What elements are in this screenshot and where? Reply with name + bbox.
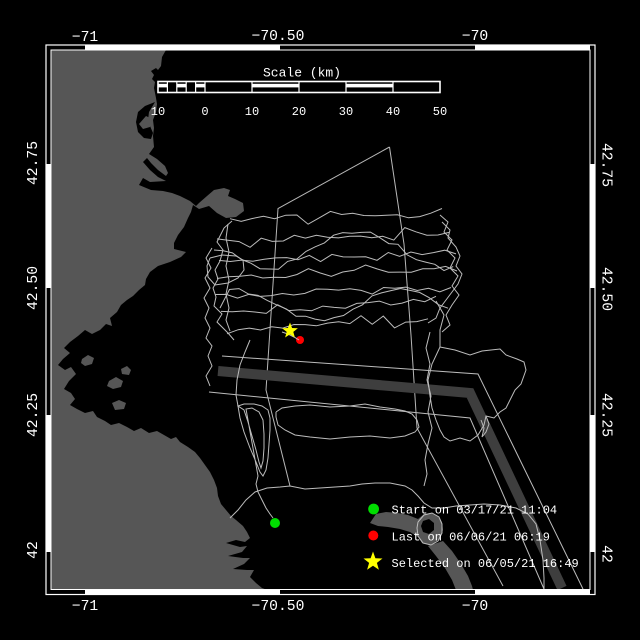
svg-text:50: 50 — [433, 105, 447, 119]
svg-text:0: 0 — [201, 105, 208, 119]
svg-text:42: 42 — [598, 545, 614, 563]
svg-text:42.50: 42.50 — [26, 266, 42, 310]
svg-text:Scale (km): Scale (km) — [263, 66, 341, 81]
svg-text:42.25: 42.25 — [598, 393, 614, 437]
svg-text:30: 30 — [339, 105, 353, 119]
svg-text:42.75: 42.75 — [598, 143, 614, 187]
svg-text:Start on 03/17/21 11:04: Start on 03/17/21 11:04 — [392, 504, 558, 518]
svg-text:−71: −71 — [72, 599, 99, 615]
svg-text:42: 42 — [26, 541, 42, 559]
svg-text:−70.50: −70.50 — [252, 29, 305, 45]
svg-text:−71: −71 — [72, 30, 99, 46]
svg-text:10: 10 — [151, 105, 165, 119]
svg-text:Last on 06/06/21 06:19: Last on 06/06/21 06:19 — [392, 531, 550, 545]
svg-text:42.25: 42.25 — [26, 393, 42, 437]
svg-text:20: 20 — [292, 105, 306, 119]
svg-text:Selected on 06/05/21 16:49: Selected on 06/05/21 16:49 — [392, 557, 579, 571]
svg-text:−70: −70 — [462, 599, 488, 615]
svg-text:42.50: 42.50 — [598, 267, 614, 311]
svg-text:−70: −70 — [462, 29, 488, 45]
svg-text:40: 40 — [386, 105, 400, 119]
svg-text:10: 10 — [245, 105, 259, 119]
svg-text:−70.50: −70.50 — [252, 599, 305, 615]
svg-text:42.75: 42.75 — [26, 141, 42, 185]
